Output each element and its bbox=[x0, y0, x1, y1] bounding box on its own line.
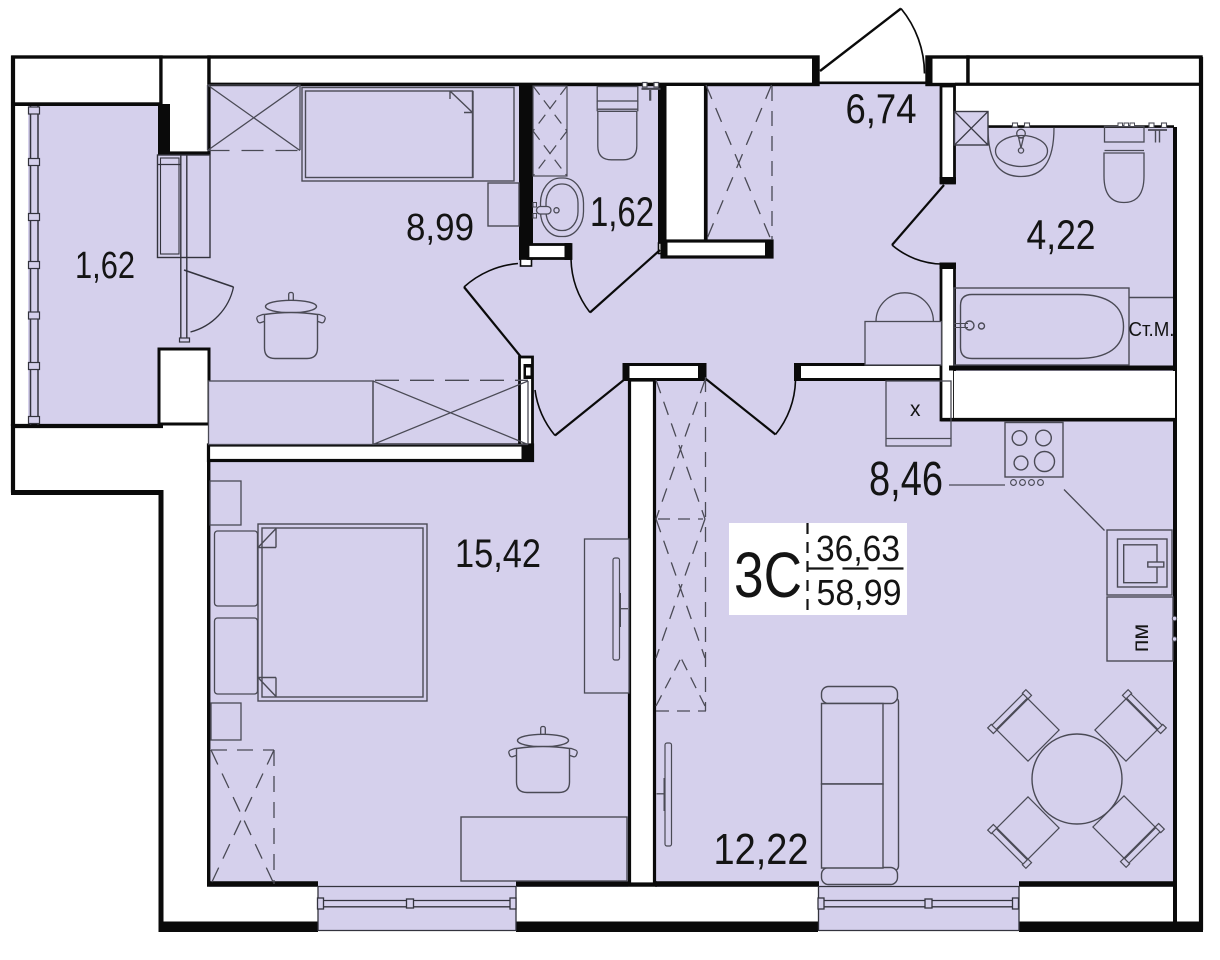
svg-text:8,99: 8,99 bbox=[406, 207, 474, 249]
svg-text:3С: 3С bbox=[734, 539, 802, 611]
svg-text:4,22: 4,22 bbox=[1027, 211, 1096, 258]
svg-text:36,63: 36,63 bbox=[816, 528, 900, 569]
svg-text:15,42: 15,42 bbox=[455, 532, 541, 576]
svg-text:1,62: 1,62 bbox=[75, 245, 135, 287]
svg-text:пм: пм bbox=[1127, 624, 1153, 652]
svg-text:6,74: 6,74 bbox=[846, 85, 917, 132]
svg-text:12,22: 12,22 bbox=[714, 825, 809, 874]
svg-text:8,46: 8,46 bbox=[869, 453, 943, 506]
svg-text:1,62: 1,62 bbox=[590, 188, 654, 235]
svg-text:х: х bbox=[910, 398, 921, 421]
svg-text:58,99: 58,99 bbox=[817, 572, 902, 613]
svg-text:Ст.М.: Ст.М. bbox=[1129, 318, 1175, 341]
